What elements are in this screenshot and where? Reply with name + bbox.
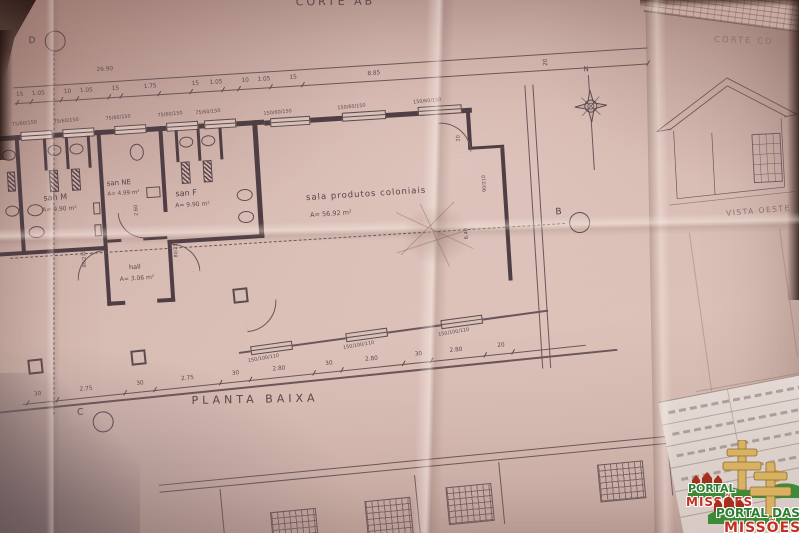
blueprint-photo: CORTE AB D 26.90 15 1.05 10 1.05 15 1.75… xyxy=(0,0,799,533)
wall xyxy=(158,126,167,212)
wall xyxy=(15,135,27,255)
window-symbol xyxy=(166,121,199,132)
west-elevation-drawing xyxy=(648,60,799,213)
wall xyxy=(252,120,264,238)
window-symbol xyxy=(114,124,147,135)
dim-label: 15 xyxy=(191,81,199,87)
dim-label: 30 xyxy=(232,370,240,377)
stall-divider xyxy=(43,138,48,170)
dim-label: 1.75 xyxy=(144,83,157,90)
sink-fixture xyxy=(28,226,45,239)
wall xyxy=(157,298,175,303)
window-label: 75/60/150 xyxy=(105,113,131,121)
room-area-san-ne: A= 4.99 m² xyxy=(107,190,140,198)
sink-fixture xyxy=(236,189,253,202)
dim-label: 10 xyxy=(64,89,72,95)
wall xyxy=(96,130,111,306)
room-area-sala: A= 56.92 m² xyxy=(310,208,352,219)
logo-text-portal-das: PORTAL DAS xyxy=(716,506,799,520)
window-symbol xyxy=(342,110,386,122)
corte-cd-title: CORTE CD xyxy=(714,35,774,47)
dim-label: 15 xyxy=(112,86,120,92)
urinal-fixture xyxy=(94,224,102,236)
urinal-fixture xyxy=(93,202,101,214)
stall-divider xyxy=(218,127,223,159)
door-swing xyxy=(118,211,147,240)
window-symbol xyxy=(418,104,462,116)
wall-edge-line xyxy=(498,462,505,524)
sink-fixture xyxy=(27,204,44,217)
room-area-hall: A= 3.06 m² xyxy=(120,274,155,283)
dim-tick xyxy=(646,60,650,66)
dim-label: 8.85 xyxy=(367,70,380,77)
stall-divider xyxy=(87,136,92,168)
window-symbol xyxy=(270,116,310,127)
dim-label: 2.75 xyxy=(181,375,194,382)
door-label: 90/210 xyxy=(482,175,488,192)
dim-label: 30 xyxy=(325,360,333,367)
dim-label: 30 xyxy=(136,380,144,387)
window-label: 150/60/150 xyxy=(337,103,366,111)
marker-b-circle xyxy=(568,211,590,233)
compass-rose-icon xyxy=(573,88,609,124)
room-name-san-m: san M xyxy=(43,192,67,202)
dim-label: 20 xyxy=(543,58,549,66)
wall-edge-line xyxy=(414,475,421,533)
stall-door xyxy=(71,168,81,191)
dim-label: 2.75 xyxy=(79,386,92,393)
wall xyxy=(500,148,512,281)
window-symbol xyxy=(20,130,53,141)
stall-door xyxy=(181,161,191,184)
room-name-sala: sala produtos coloniais xyxy=(306,186,427,204)
compass-north-label: N xyxy=(583,65,589,73)
dim-label: 2.80 xyxy=(272,365,285,372)
sink-fixture xyxy=(238,210,255,223)
dim-label: 20 xyxy=(455,135,461,142)
dim-label: 2.80 xyxy=(449,347,462,354)
toilet-fixture xyxy=(179,136,194,148)
wall xyxy=(143,236,167,241)
stall-divider xyxy=(196,129,201,161)
gridded-window xyxy=(445,483,494,525)
window-label: 150/60/150 xyxy=(413,97,442,105)
window-label: 75/60/150 xyxy=(11,119,37,127)
dim-label: 1.05 xyxy=(80,87,93,94)
portal-das-missoes-logo-large: PORTAL DAS MISSÕES xyxy=(708,462,799,533)
stall-divider xyxy=(65,137,70,169)
dim-label: 1.05 xyxy=(32,90,45,97)
dim-label: 15 xyxy=(16,92,24,98)
stall-door xyxy=(7,171,16,191)
wall-edge-line xyxy=(220,489,228,533)
dim-label: 1.05 xyxy=(257,76,270,83)
section-line-dc xyxy=(53,53,54,415)
toilet-fixture xyxy=(47,144,62,156)
veranda-post xyxy=(27,358,43,374)
stall-door xyxy=(202,160,212,183)
window-label: 150/60/150 xyxy=(263,108,292,116)
wall xyxy=(107,301,125,306)
dim-label: 2.60 xyxy=(133,205,140,216)
logo-text-missoes: MISSÕES xyxy=(724,520,799,533)
toilet-fixture xyxy=(69,143,84,155)
section-line-ab xyxy=(10,223,565,259)
toilet-fixture xyxy=(1,149,16,161)
gridded-window xyxy=(597,460,646,502)
wall xyxy=(468,145,504,150)
veranda-post xyxy=(232,287,248,303)
marker-d-circle xyxy=(44,30,66,52)
room-name-san-f: san F xyxy=(175,188,197,198)
dim-total: 26.90 xyxy=(96,66,113,73)
toilet-fixture xyxy=(201,135,216,147)
room-name-hall: hall xyxy=(129,263,141,272)
door-label: 80/210 xyxy=(173,240,179,257)
toilet-fixture xyxy=(129,143,144,161)
marker-d-label: D xyxy=(28,36,36,46)
sink-fixture xyxy=(146,186,161,198)
window-label: 75/60/150 xyxy=(195,108,221,116)
window-label: 75/60/150 xyxy=(157,110,183,118)
door-swing xyxy=(76,250,107,281)
dim-label: 30 xyxy=(415,351,423,358)
sink-fixture xyxy=(5,205,20,217)
room-area-san-f: A= 9.90 m² xyxy=(175,200,210,209)
gridded-window xyxy=(364,497,413,533)
dim-label: 1.05 xyxy=(209,79,222,86)
room-area-san-m: A= 9.90 m² xyxy=(42,205,77,214)
wall xyxy=(107,239,121,243)
door-swing xyxy=(245,299,278,332)
marker-b-label: B xyxy=(555,207,562,217)
dim-label: 20 xyxy=(497,342,505,349)
veranda-post xyxy=(130,349,146,365)
faint-drawing-line xyxy=(779,229,798,358)
dim-label: 30 xyxy=(34,391,42,398)
gridded-window xyxy=(270,508,319,533)
stall-divider xyxy=(175,130,180,162)
dim-label: 2.80 xyxy=(365,356,378,363)
dim-label: 10 xyxy=(241,78,249,84)
dim-label: 15 xyxy=(289,75,297,81)
window-label: 75/60/150 xyxy=(53,117,79,125)
room-name-san-ne: san NE xyxy=(106,178,131,188)
corte-ab-title: CORTE AB xyxy=(296,0,376,8)
